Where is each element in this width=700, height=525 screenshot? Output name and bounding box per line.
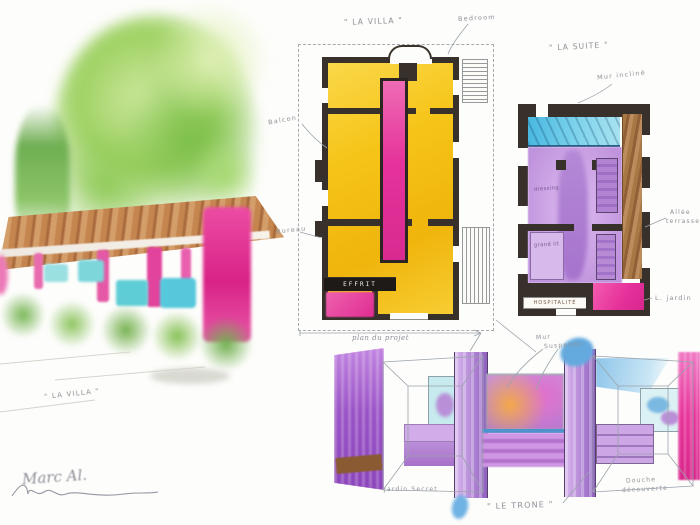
interior-title: " LE TRONE " [487, 500, 554, 511]
label-jardin-secret: Jardin Secret [384, 486, 438, 493]
right-window-purple [661, 411, 679, 425]
interior-pillar-left [454, 352, 488, 498]
left-window-plant [436, 393, 454, 417]
label-mur-suspendu-1: Mur [536, 333, 551, 341]
watercolor-artboard: " LA VILLA " Marc Al. [0, 0, 700, 525]
niche-artwork [486, 374, 564, 430]
label-douche-1: Douche [626, 476, 656, 485]
interior-right-wall [678, 352, 700, 480]
right-room-dresser [596, 424, 654, 464]
niche-bed [482, 433, 566, 467]
label-douche-2: découverte [622, 485, 668, 494]
interior-pillar-right [564, 349, 596, 497]
interior-sketch: Mur Suspendu Jardin Secret Douche découv… [0, 0, 700, 525]
